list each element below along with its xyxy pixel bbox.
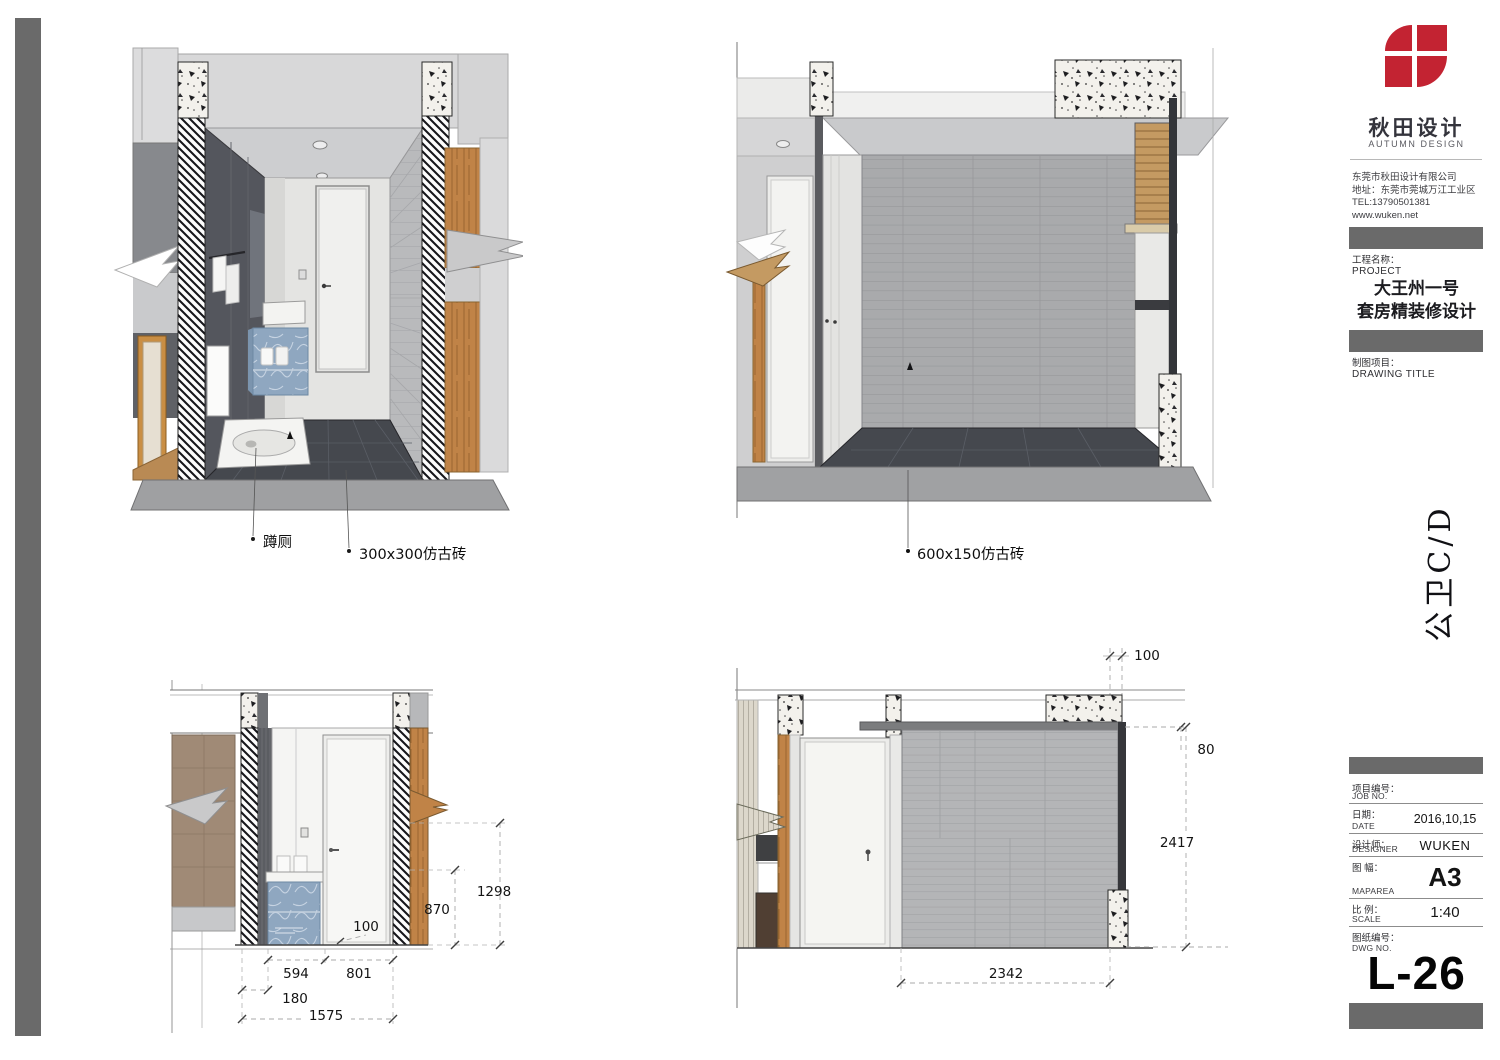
dim-180: 180	[282, 991, 308, 1007]
annotation-tile-300: 300x300仿古砖	[359, 546, 466, 563]
autumn-design-logo	[1385, 25, 1447, 87]
vanity-side	[248, 328, 253, 395]
door	[319, 189, 366, 369]
brand-name-en: AUTUMN DESIGN	[1348, 139, 1485, 149]
project-name-line1: 大王州一号	[1348, 274, 1485, 299]
wood-trim	[778, 735, 790, 948]
sheet-edge-bar	[15, 18, 41, 1036]
bathroom-interior	[205, 128, 423, 480]
door	[805, 742, 885, 944]
wall-mullion	[815, 116, 823, 498]
field-date: 日期： DATE 2016,10,15	[1349, 804, 1483, 834]
section-bar	[1349, 757, 1483, 774]
wood-panel-right	[445, 138, 508, 472]
switch	[301, 828, 308, 837]
annotation-tile-600: 600x150仿古砖	[917, 546, 1024, 563]
wall-band-top-right	[458, 54, 508, 144]
towel	[213, 256, 226, 292]
cut-wall-hatch	[241, 728, 258, 945]
cut-wall-hatch	[393, 728, 410, 945]
view-perspective-d: 600x150仿古砖	[723, 18, 1235, 583]
concrete-column	[241, 693, 258, 728]
wall-band-top	[178, 54, 458, 128]
plinth	[131, 480, 509, 510]
concrete-column	[810, 62, 833, 116]
view-elevation-d: 100 80	[723, 618, 1235, 1020]
concrete-column	[178, 62, 208, 118]
tissue-roll	[261, 348, 273, 365]
wood-cabinet-section	[172, 735, 235, 931]
door	[327, 739, 386, 942]
switch	[299, 270, 306, 279]
sheet-number: L-26	[1348, 946, 1485, 1000]
dim-100-top: 100	[1134, 648, 1160, 664]
concrete-column	[1159, 374, 1181, 467]
wood-trim	[753, 264, 765, 462]
shower-room	[820, 98, 1181, 498]
view-perspective-c: 蹲厕 300x300仿古砖	[113, 18, 523, 583]
info-table: 项目编号： JOB NO. 日期： DATE 2016,10,15 设计师： D…	[1349, 778, 1483, 955]
view-elevation-c: 1298 870 100 594 801 180 1575	[163, 638, 535, 1050]
field-designer: 设计师： DESIGNER WUKEN	[1349, 834, 1483, 857]
plinth	[737, 467, 1211, 501]
adjacent-hallway	[727, 78, 815, 468]
section-bar	[1349, 227, 1483, 249]
concrete-column	[1108, 890, 1128, 948]
towel	[226, 264, 239, 304]
field-maparea: 图 幅： MAPAREA A3	[1349, 857, 1483, 899]
cabinet-dark-box	[756, 835, 778, 861]
drawing-code-vertical: 公卫C/D	[1334, 470, 1500, 676]
concrete-column	[393, 693, 410, 728]
dim-80: 80	[1197, 742, 1214, 758]
dim-801: 801	[346, 966, 372, 982]
dim-594: 594	[283, 966, 309, 982]
tissue-roll	[276, 347, 288, 365]
ceiling-light	[777, 141, 790, 148]
concrete-column	[778, 695, 803, 735]
cabinet-lower	[756, 893, 780, 948]
section-bar	[1349, 1003, 1483, 1029]
vanity-counter	[263, 301, 305, 325]
title-block: 秋田设计 AUTUMN DESIGN 东莞市秋田设计有限公司 地址：东莞市莞城万…	[1348, 0, 1485, 1060]
concrete-column	[886, 695, 901, 737]
project-name-line2: 套房精装修设计	[1348, 297, 1485, 322]
dim-100: 100	[353, 919, 379, 935]
drawing-sheet: 蹲厕 300x300仿古砖	[0, 0, 1500, 1060]
dim-2417: 2417	[1160, 835, 1194, 851]
dim-870: 870	[424, 902, 450, 918]
radiator-panel	[207, 346, 229, 416]
concrete-beam	[1046, 695, 1122, 725]
divider	[1350, 159, 1482, 160]
concrete-column	[422, 62, 452, 116]
dim-2342: 2342	[989, 966, 1023, 982]
dim-1298: 1298	[477, 884, 511, 900]
field-scale: 比 例： SCALE 1:40	[1349, 899, 1483, 927]
company-info: 东莞市秋田设计有限公司 地址：东莞市莞城万江工业区 TEL:1379050138…	[1352, 172, 1485, 222]
concrete-beam	[1055, 60, 1181, 118]
dim-top-100: 100	[1103, 648, 1160, 700]
ceiling-light	[313, 141, 327, 149]
brand-name-cn: 秋田设计	[1348, 112, 1485, 142]
drawing-title-label: 制图项目： DRAWING TITLE	[1352, 355, 1482, 380]
annotation-squat-toilet: 蹲厕	[263, 534, 292, 551]
dim-1575: 1575	[309, 1008, 343, 1024]
field-job-no: 项目编号： JOB NO.	[1349, 778, 1483, 804]
door-handle	[866, 850, 871, 855]
mirror	[250, 210, 265, 318]
cut-wall-hatch	[178, 118, 205, 480]
floor-tiles	[820, 428, 1181, 467]
section-bar	[1349, 330, 1483, 352]
